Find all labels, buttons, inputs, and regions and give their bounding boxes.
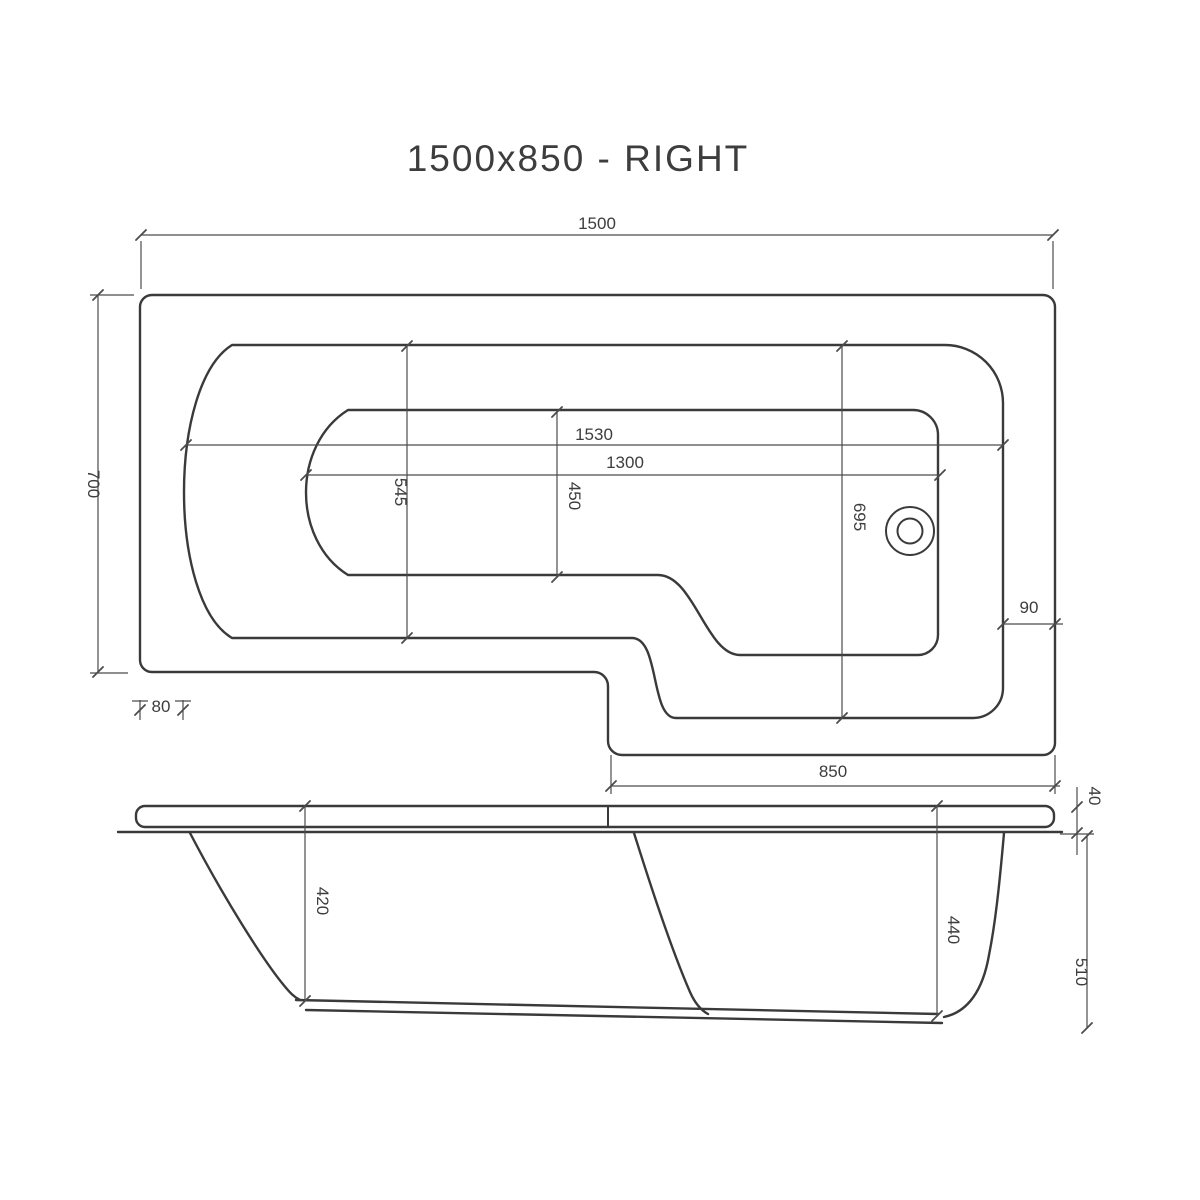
dim-basin-width-label: 450 (565, 482, 584, 510)
drain-inner-circle (898, 519, 923, 544)
plan-view: 1500 700 80 1530 1300 545 450 695 90 850 (84, 214, 1063, 794)
dim-line-1500 (141, 235, 1053, 289)
plan-outer-outline (140, 295, 1055, 755)
dim-rim-thickness-label: 40 (1085, 787, 1104, 806)
side-left-wall (190, 833, 300, 1000)
technical-drawing-page: 1500x850 - RIGHT (0, 0, 1200, 1200)
side-view: 420 440 510 40 (118, 787, 1104, 1033)
drain-outer-circle (886, 507, 934, 555)
plan-inner-rim-outline (184, 345, 1003, 718)
side-rim-bar (136, 806, 1054, 827)
dim-inner-rim-length-label: 1530 (575, 425, 613, 444)
dim-overall-width-label: 700 (84, 470, 103, 498)
bath-technical-drawing: 1500 700 80 1530 1300 545 450 695 90 850 (0, 0, 1200, 1200)
plan-basin-outline (306, 410, 938, 655)
dim-overall-height-label: 510 (1072, 958, 1091, 986)
plan-dimension-ticks (93, 230, 1060, 791)
dim-shower-width-label: 695 (850, 503, 869, 531)
dim-right-rim-label: 90 (1020, 598, 1039, 617)
dim-left-rim-label: 80 (152, 697, 171, 716)
dim-shower-section-length-label: 850 (819, 762, 847, 781)
dim-line-510 (1060, 834, 1094, 1028)
dim-bath-width-label: 545 (391, 478, 410, 506)
dim-basin-length-label: 1300 (606, 453, 644, 472)
dim-overall-length-label: 1500 (578, 214, 616, 233)
side-shower-left-wall (634, 833, 708, 1014)
dim-bath-depth-label: 420 (313, 887, 332, 915)
dim-shower-end-depth-label: 440 (944, 916, 963, 944)
